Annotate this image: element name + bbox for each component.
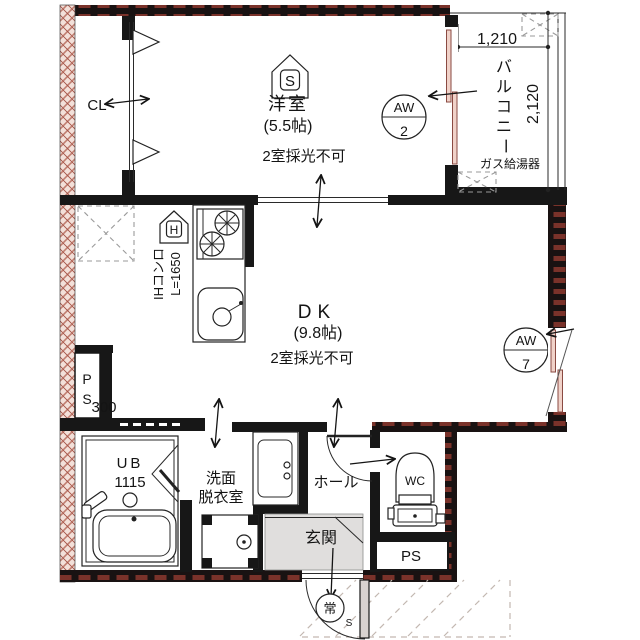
- balcony-char-2: ル: [496, 79, 512, 96]
- wc-opening-arrow: [350, 459, 394, 464]
- wall-hall-wc-top: [370, 430, 380, 448]
- door-mark-jo: 常 S: [316, 594, 353, 629]
- western-room-size: (5.5帖): [264, 117, 313, 135]
- balcony-width-dim: 1,210: [477, 31, 517, 48]
- aw2-code: AW: [394, 100, 415, 115]
- wall-left-hatched: [60, 5, 75, 582]
- hall-opening-arrow: [334, 400, 338, 446]
- stove-icon: [197, 209, 243, 259]
- shade-badge-s: S: [272, 55, 308, 98]
- closet-label: CL: [87, 97, 106, 114]
- sink-icon: [198, 288, 243, 340]
- door-mark-sub-label: S: [346, 618, 353, 629]
- western-room-label: 洋室: [268, 94, 308, 114]
- balcony-char-4: ニ: [496, 119, 512, 136]
- floor-plan-svg: 1,210 2,120 バ ル コ ニ ー ガス給湯器 CL: [0, 0, 640, 640]
- door-panel-flag-top: [133, 30, 159, 54]
- sliding-door-arrow: [317, 176, 321, 226]
- washer-pan-icon: [202, 515, 258, 568]
- ps-left-p: P: [82, 371, 91, 387]
- sliding-door-yoshitsu-dk: [258, 198, 388, 203]
- wall-top: [60, 5, 450, 16]
- unit-bath: UB 1115: [82, 436, 179, 566]
- balcony-area: 1,210 2,120 バ ル コ ニ ー ガス給湯器: [445, 11, 566, 192]
- hood-badge-h-label: H: [170, 223, 179, 237]
- refrigerator-space-box: [78, 206, 134, 261]
- toilet-icon: [388, 453, 445, 526]
- wall-right-dk-upper: [548, 195, 566, 328]
- wc-room: WC: [388, 453, 445, 526]
- ps-bottom-label: PS: [401, 548, 421, 565]
- ub-label: UB: [117, 455, 144, 472]
- ub-size: 1115: [114, 474, 145, 491]
- balcony-label: バ ル コ ニ ー: [496, 59, 513, 154]
- dk-room: H IHコンロ L=1650 DK (9.8帖) 2室採光不可 AW 7 P S…: [75, 205, 574, 418]
- door-panel-flag-bottom: [133, 140, 159, 164]
- hall-label: ホール: [313, 474, 358, 491]
- window-aw7: [546, 328, 572, 416]
- window-badge-aw2: AW 2: [382, 95, 426, 139]
- roof-hatch-box: [522, 14, 558, 36]
- stove-label: IHコンロ: [151, 248, 166, 300]
- bath-handle: [82, 505, 91, 518]
- ps-left-s: S: [82, 391, 91, 407]
- washroom-label-1: 洗面: [206, 470, 236, 487]
- balcony-char-1: バ: [496, 59, 512, 76]
- kitchen-counter: [193, 205, 245, 342]
- hood-badge-h: H: [160, 211, 188, 243]
- closet-opening-arrow: [106, 99, 148, 104]
- window-badge-aw7: AW 7: [504, 328, 548, 372]
- washroom-opening-arrow: [215, 400, 219, 446]
- closet-sliding-door: [130, 22, 160, 182]
- aw2-number: 2: [400, 123, 408, 139]
- door-mark-jo-label: 常: [323, 601, 336, 616]
- vanity-icon: [253, 432, 298, 505]
- balcony-depth-dim: 2,120: [525, 84, 542, 124]
- pipe-space-bottom: PS: [376, 541, 448, 570]
- dk-label: DK: [298, 302, 336, 323]
- counter-length-label: L=1650: [168, 252, 183, 296]
- shade-badge-s-label: S: [285, 73, 295, 90]
- aw7-number: 7: [522, 356, 530, 372]
- western-room-note: 2室採光不可: [262, 148, 345, 165]
- drain-icon: [123, 493, 137, 507]
- wall-yoshitsu-dk-right: [388, 195, 445, 205]
- wc-label: WC: [405, 474, 425, 488]
- dk-size: (9.8帖): [294, 324, 343, 342]
- window-to-balcony: [445, 27, 458, 165]
- wall-balcony-bottom-stub: [445, 165, 458, 189]
- gas-water-heater-label: ガス給湯器: [480, 157, 540, 171]
- wall-yoshitsu-dk-left: [60, 195, 258, 205]
- aw7-code: AW: [516, 333, 537, 348]
- entry-door-leaf: [360, 580, 369, 638]
- ps-dimension: 300: [91, 399, 116, 416]
- wall-ub-right: [180, 500, 192, 572]
- balcony-char-3: コ: [496, 99, 512, 116]
- dk-note: 2室採光不可: [270, 350, 353, 367]
- wall-balcony-top-stub: [445, 15, 458, 27]
- washroom-label-2: 脱衣室: [198, 489, 243, 506]
- wall-lower-top-mid: [232, 422, 327, 432]
- genkan-label: 玄関: [305, 529, 337, 547]
- floor-plan: 1,210 2,120 バ ル コ ニ ー ガス給湯器 CL: [0, 0, 640, 640]
- wall-dk-bottom-exterior: [372, 422, 567, 432]
- wall-lower-top-left: [60, 418, 205, 431]
- balcony-char-5: ー: [496, 138, 513, 154]
- wall-washroom-hall: [299, 430, 308, 507]
